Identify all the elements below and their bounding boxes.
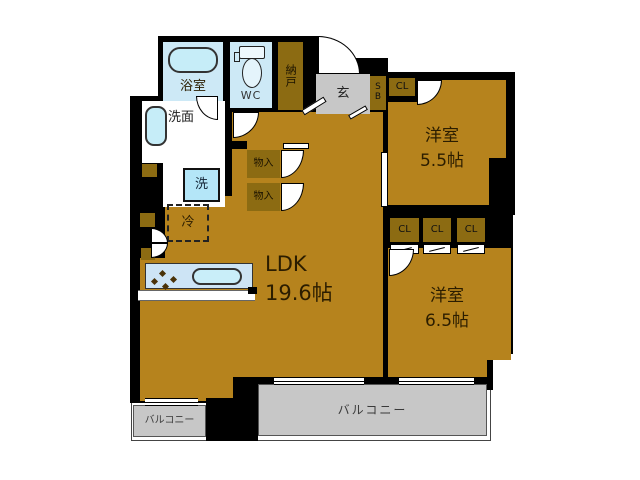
wash-basin: [145, 106, 167, 146]
bedroom1-sliding-door: [381, 152, 388, 207]
toilet-handle: [234, 52, 240, 62]
balcony-divider: [206, 398, 258, 441]
bedroom2-label: 洋室 6.5帖: [397, 278, 497, 340]
washer-label: 洗: [183, 168, 220, 202]
closet-b-label: 物入: [246, 183, 281, 211]
shoe-box-label: S B: [370, 76, 386, 110]
closet-top-label: CL: [389, 78, 415, 96]
closet-row-1-label: CL: [390, 218, 419, 242]
closet-row-2-label: CL: [423, 218, 451, 242]
entrance-door-arc: [318, 36, 360, 74]
bathroom-label: 浴室: [163, 78, 223, 96]
toilet-label: WC: [230, 88, 272, 104]
bedroom2-name: 洋室: [430, 284, 464, 309]
toilet-bowl: [242, 58, 262, 88]
bedroom1-name: 洋室: [425, 124, 459, 149]
washroom-label: 洗面: [168, 110, 194, 126]
ldk-label: LDK 19.6帖: [265, 250, 333, 309]
outline-bottom: [131, 440, 490, 441]
bedroom2-size: 6.5帖: [425, 309, 469, 334]
corridor-opening: [283, 143, 309, 149]
ldk-name: LDK: [265, 250, 333, 279]
folding-door-3: [457, 244, 485, 254]
bedroom1-label: 洋室 5.5帖: [392, 118, 492, 180]
shoe-box-line2: B: [375, 93, 381, 103]
counter-end: [248, 287, 257, 294]
bathtub: [168, 47, 218, 73]
outline-right: [490, 384, 491, 441]
fridge-label: 冷: [167, 204, 209, 242]
counter-ledge: [138, 290, 255, 301]
bedroom1-size: 5.5帖: [420, 149, 464, 174]
folding-door-2: [423, 244, 451, 254]
pillar-1: [142, 164, 157, 177]
balcony-large-label: バルコニー: [258, 384, 487, 436]
balcony-small-label: バルコニー: [133, 405, 206, 437]
closet-row-3-label: CL: [457, 218, 485, 242]
storage-label: 納戸: [278, 42, 303, 110]
closet-a-label: 物入: [246, 150, 281, 178]
kitchen-sink: [192, 268, 242, 285]
bedroom2-floor-b: [388, 360, 487, 377]
floor-plan: 浴室 WC 納戸 玄 S B CL 洋室 5.5帖 洗面 洗 物入 物入 冷 L…: [0, 0, 640, 480]
entrance-label: 玄: [316, 74, 370, 114]
pillar-2: [140, 213, 155, 227]
ldk-size: 19.6帖: [265, 279, 333, 308]
